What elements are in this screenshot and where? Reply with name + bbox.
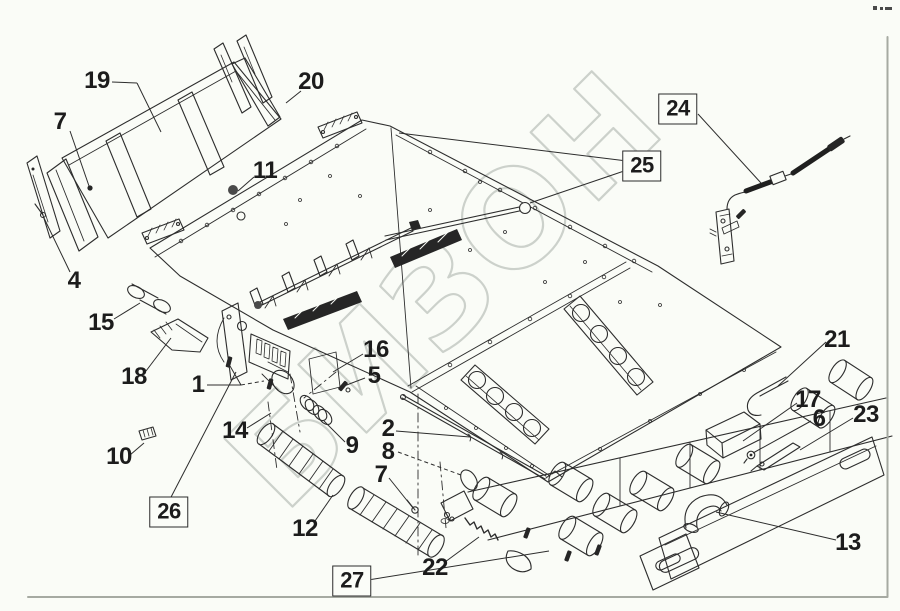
leader-line-19 [137, 83, 161, 132]
leader-line-9 [324, 421, 345, 442]
leader-line-18 [146, 338, 171, 371]
leader-line-7 [70, 131, 89, 186]
leader-line-27 [368, 551, 549, 580]
leader-line-5 [344, 378, 365, 386]
leader-line-19 [112, 82, 137, 83]
leader-line-24 [698, 114, 761, 183]
leader-line-26 [169, 372, 236, 501]
leader-line-25 [530, 170, 627, 203]
leader-line-2 [396, 431, 470, 437]
leader-line-20 [286, 91, 301, 103]
leader-line-25 [399, 133, 627, 161]
leader-line-12 [315, 495, 333, 521]
leader-line-1 [230, 366, 241, 385]
leader-line-15 [114, 303, 140, 319]
leader-line-17 [743, 403, 797, 441]
leader-lines [0, 0, 900, 611]
leader-line-1 [241, 381, 264, 385]
leader-line-21 [778, 342, 826, 386]
leader-line-14 [247, 413, 271, 428]
leader-line-4 [44, 218, 70, 272]
leader-line-7 [389, 478, 413, 508]
leader-line-22 [445, 537, 479, 562]
leader-line-10 [130, 443, 144, 455]
leader-line-13 [716, 512, 836, 540]
leader-line-11 [238, 177, 254, 191]
leader-line-16 [333, 354, 363, 372]
parts-diagram-page: БИЗОН [0, 0, 900, 611]
leader-line-8 [398, 452, 461, 475]
